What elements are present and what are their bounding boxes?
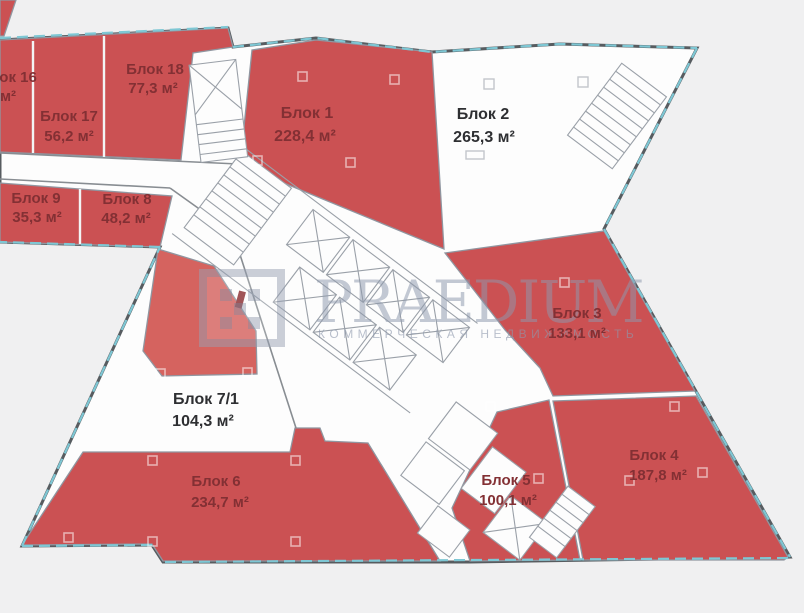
block-9-area: 35,3 м² (12, 209, 61, 226)
block-16-label: Блок 16 (0, 69, 37, 86)
floor-plan: PRAEDIUM КОММЕРЧЕСКАЯ НЕДВИЖИМОСТЬ Блок … (0, 0, 804, 613)
block-3-area: 133,1 м² (548, 325, 606, 342)
block-8-area: 48,2 м² (101, 210, 150, 227)
block-4-area: 187,8 м² (629, 467, 687, 484)
block-18-area: 77,3 м² (128, 80, 177, 97)
block-8-label: Блок 8 (102, 191, 151, 208)
block-3-label: Блок 3 (552, 305, 601, 322)
block-18-label: Блок 18 (126, 61, 184, 78)
block-6-area: 234,7 м² (191, 494, 249, 511)
block-7-1-area: 104,3 м² (172, 413, 234, 430)
block-9-label: Блок 9 (11, 190, 60, 207)
block-16-area: м² (0, 88, 16, 105)
block-5-label: Блок 5 (481, 472, 530, 489)
block-17-label: Блок 17 (40, 108, 98, 125)
block-5-area: 100,1 м² (479, 492, 537, 509)
block-7-1-label: Блок 7/1 (173, 391, 239, 408)
praedium-logo-icon (203, 273, 281, 343)
floor-plan-page: PRAEDIUM КОММЕРЧЕСКАЯ НЕДВИЖИМОСТЬ Блок … (0, 0, 804, 613)
block-1-area: 228,4 м² (274, 128, 336, 145)
block-2-area: 265,3 м² (453, 129, 515, 146)
block-1-label: Блок 1 (281, 105, 334, 122)
block-4-label: Блок 4 (629, 447, 679, 464)
block-2-label: Блок 2 (457, 106, 510, 123)
block-6-label: Блок 6 (191, 473, 240, 490)
block-17-area: 56,2 м² (44, 128, 93, 145)
